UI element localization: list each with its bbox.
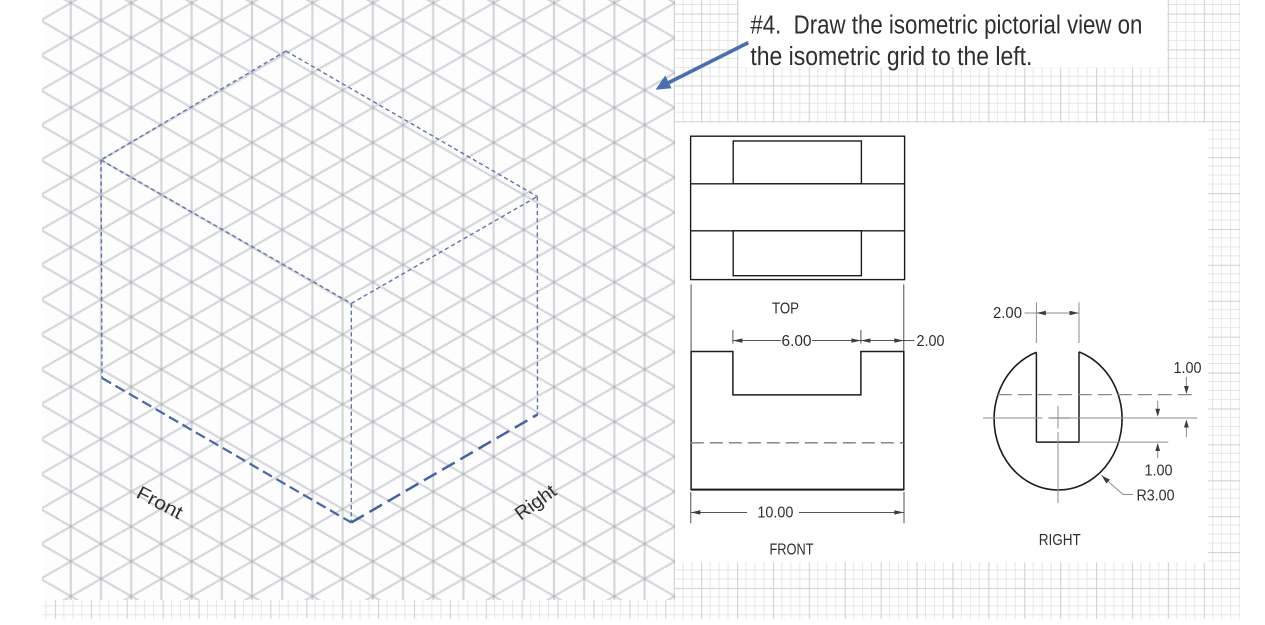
svg-text:FRONT: FRONT	[770, 542, 814, 559]
svg-text:1.00: 1.00	[1174, 360, 1202, 377]
svg-text:2.00: 2.00	[917, 333, 945, 350]
svg-text:R3.00: R3.00	[1137, 488, 1175, 505]
svg-text:1.00: 1.00	[1145, 463, 1173, 480]
svg-text:2.00: 2.00	[993, 305, 1022, 322]
svg-text:6.00: 6.00	[782, 333, 812, 350]
svg-text:RIGHT: RIGHT	[1039, 532, 1081, 549]
svg-text:10.00: 10.00	[757, 505, 793, 522]
svg-text:#4. Draw the isometric pictor: #4. Draw the isometric pictorial view on	[750, 12, 1142, 40]
svg-text:TOP: TOP	[772, 300, 799, 317]
svg-text:the isometric grid to the left: the isometric grid to the left.	[750, 43, 1032, 71]
